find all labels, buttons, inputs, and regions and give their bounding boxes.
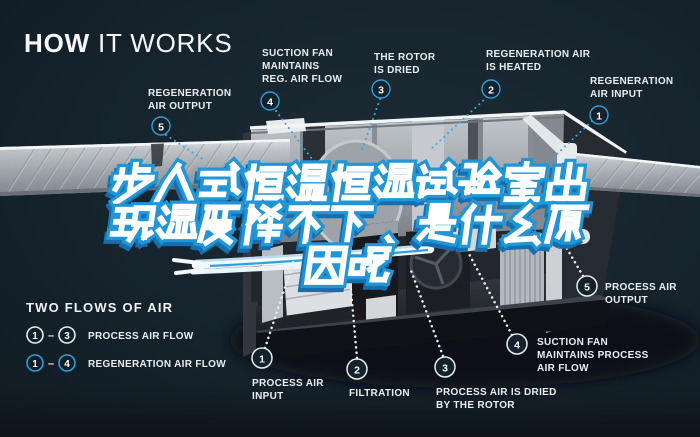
svg-text:5: 5 — [158, 122, 164, 134]
svg-text:4: 4 — [267, 97, 273, 109]
svg-text:3: 3 — [378, 85, 384, 97]
svg-text:SUCTION FAN: SUCTION FAN — [537, 337, 608, 348]
svg-text:THE ROTOR: THE ROTOR — [374, 52, 436, 63]
svg-text:BY THE ROTOR: BY THE ROTOR — [436, 400, 515, 411]
svg-text:1: 1 — [596, 111, 602, 123]
svg-text:3: 3 — [64, 331, 70, 342]
svg-text:IS DRIED: IS DRIED — [374, 65, 420, 76]
svg-text:REG. AIR FLOW: REG. AIR FLOW — [262, 74, 342, 85]
svg-text:FILTRATION: FILTRATION — [349, 388, 410, 399]
svg-text:IS HEATED: IS HEATED — [486, 62, 541, 73]
svg-text:PROCESS AIR FLOW: PROCESS AIR FLOW — [88, 331, 194, 342]
svg-text:PROCESS AIR: PROCESS AIR — [605, 282, 677, 293]
svg-text:MAINTAINS: MAINTAINS — [262, 61, 320, 72]
svg-text:INPUT: INPUT — [252, 391, 284, 402]
svg-text:AIR INPUT: AIR INPUT — [590, 89, 643, 100]
svg-text:REGENERATION AIR FLOW: REGENERATION AIR FLOW — [88, 359, 226, 370]
svg-text:HOW IT WORKS: HOW IT WORKS — [24, 28, 232, 58]
svg-text:2: 2 — [488, 85, 494, 97]
svg-text:REGENERATION AIR: REGENERATION AIR — [486, 49, 591, 60]
svg-text:3: 3 — [442, 363, 448, 375]
svg-text:REGENERATION: REGENERATION — [148, 88, 231, 99]
svg-text:–: – — [48, 330, 54, 342]
svg-text:–: – — [48, 358, 54, 370]
svg-text:1: 1 — [259, 354, 265, 366]
svg-text:4: 4 — [64, 359, 70, 370]
svg-text:REGENERATION: REGENERATION — [590, 76, 673, 87]
svg-text:AIR FLOW: AIR FLOW — [537, 363, 589, 374]
svg-text:1: 1 — [32, 359, 38, 370]
svg-text:AIR OUTPUT: AIR OUTPUT — [148, 101, 212, 112]
svg-text:PROCESS AIR IS DRIED: PROCESS AIR IS DRIED — [436, 387, 557, 398]
svg-text:2: 2 — [354, 365, 360, 377]
svg-text:PROCESS AIR: PROCESS AIR — [252, 378, 324, 389]
svg-text:5: 5 — [584, 282, 590, 294]
svg-text:SUCTION FAN: SUCTION FAN — [262, 48, 333, 59]
svg-text:TWO FLOWS OF AIR: TWO FLOWS OF AIR — [26, 300, 173, 315]
svg-text:4: 4 — [514, 340, 520, 352]
svg-text:OUTPUT: OUTPUT — [605, 295, 648, 306]
svg-text:MAINTAINS PROCESS: MAINTAINS PROCESS — [537, 350, 649, 361]
svg-text:1: 1 — [32, 331, 38, 342]
